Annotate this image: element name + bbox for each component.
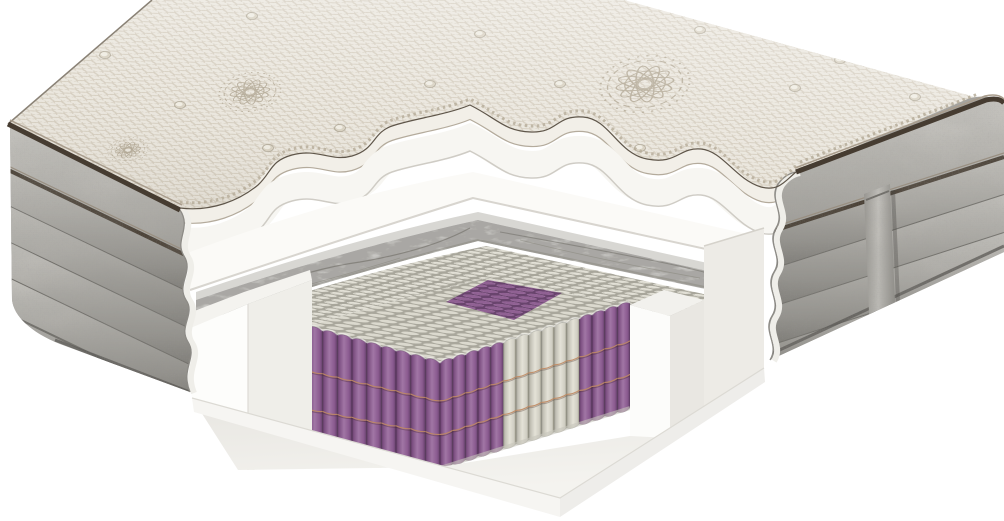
- mattress-cutaway-render: [0, 0, 1004, 521]
- pocket-coil-white: [554, 323, 567, 433]
- medallion-petal: [886, 32, 923, 59]
- pocket-coil-white: [516, 335, 529, 445]
- pocket-coil-white: [503, 339, 516, 449]
- pocket-coil-white: [567, 319, 580, 429]
- pocket-coil-purple: [352, 339, 367, 458]
- pocket-coil-purple: [381, 347, 396, 463]
- pocket-coil-purple: [579, 315, 592, 425]
- pocket-coil-purple: [337, 335, 352, 456]
- medallion-petal: [889, 31, 921, 61]
- pocket-coil-purple: [425, 359, 440, 470]
- pocket-coil-purple: [465, 351, 478, 461]
- medallion-petal: [886, 32, 923, 59]
- pocket-coil-purple: [411, 355, 426, 467]
- medallion-petal: [881, 38, 928, 55]
- pocket-coil-purple: [491, 343, 504, 453]
- pocket-coil-purple: [617, 303, 630, 413]
- medallion-outer-ring: [873, 23, 937, 68]
- mattress-cutaway-image: [0, 0, 1004, 521]
- pocket-coil-white: [529, 331, 542, 441]
- medallion-petal: [882, 33, 927, 59]
- medallion-core: [899, 42, 911, 51]
- medallion-petal: [882, 39, 929, 54]
- pocket-coil-purple: [367, 343, 382, 460]
- medallion-spike-ring: [867, 19, 944, 73]
- medallion-petal: [889, 31, 921, 61]
- medallion-ring: [888, 34, 923, 58]
- pocket-coil-purple: [453, 355, 466, 465]
- pocket-coil-purple: [396, 351, 411, 465]
- medallion-petal: [896, 31, 914, 61]
- pocket-coil-white: [541, 327, 554, 437]
- medallion-petal: [896, 31, 914, 61]
- pocket-coil-purple: [605, 307, 618, 417]
- pocket-coil-purple: [478, 347, 491, 457]
- pocket-coil-purple: [440, 359, 453, 469]
- medallion-petal: [881, 38, 928, 55]
- medallion-petal: [882, 33, 927, 59]
- embroidery-medallion: [867, 19, 944, 73]
- pocket-coil-purple: [592, 311, 605, 421]
- right-wall-front: [630, 305, 670, 438]
- medallion-petal: [882, 39, 929, 54]
